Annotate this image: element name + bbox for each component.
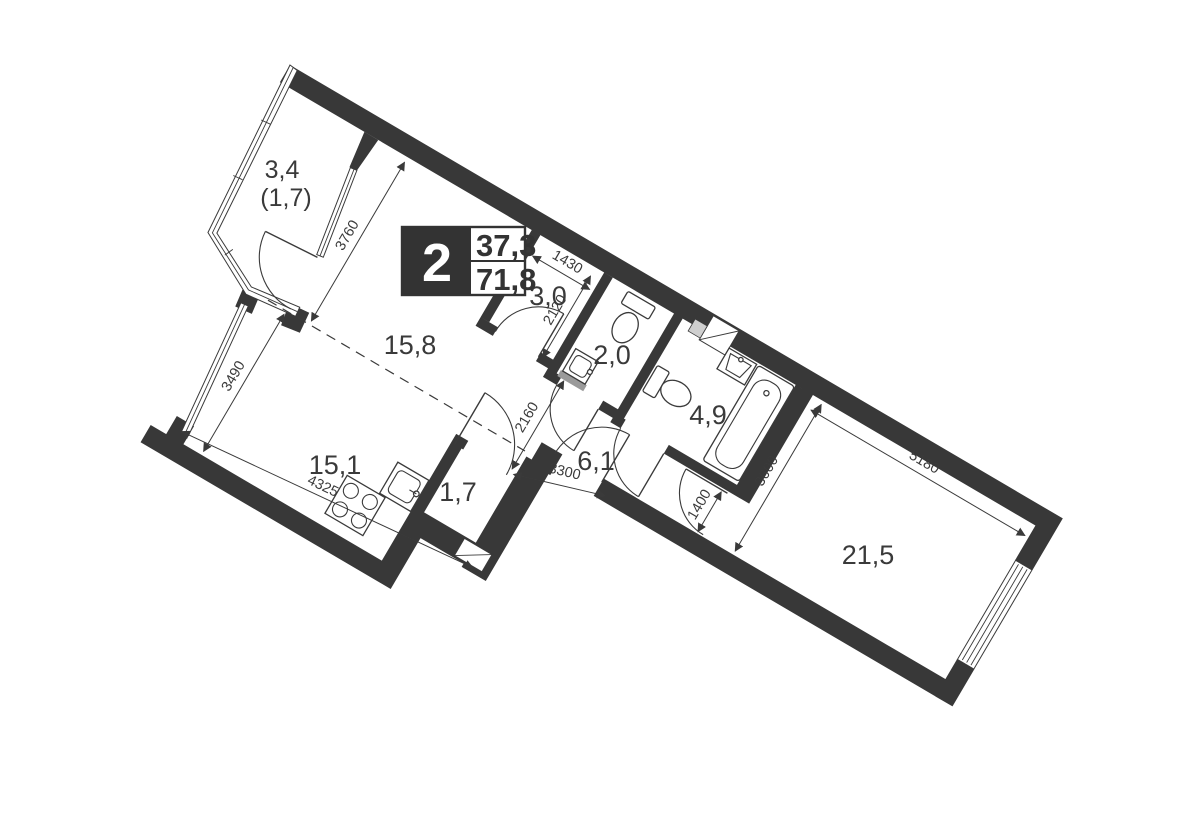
- badge-area-lower: 71,8: [476, 262, 536, 297]
- room-label-balcony: 3,4: [265, 156, 300, 184]
- room-label-bathroom: 4,9: [689, 400, 727, 430]
- room-label-wc: 2,0: [593, 340, 631, 370]
- apartment-badge: 2 37,3 71,8: [402, 227, 536, 297]
- room-label-storage: 1,7: [439, 477, 477, 507]
- badge-area-upper: 37,3: [476, 228, 536, 263]
- dim-value: 2160: [512, 400, 542, 436]
- plan-rotated-group: 3760 1430 2120 2160 3300 3490 4325 3600: [87, 65, 1063, 820]
- dim-value: 1400: [685, 487, 715, 523]
- floor-plan-canvas: 3760 1430 2120 2160 3300 3490 4325 3600: [0, 0, 1200, 820]
- dimension-passage-width: 1400: [681, 482, 722, 532]
- room-label-balcony-reduced: (1,7): [260, 184, 311, 212]
- dim-value: 3490: [219, 358, 249, 394]
- room-label-bedroom: 21,5: [842, 540, 895, 570]
- room-label-living: 15,8: [384, 330, 437, 360]
- room-label-hallway: 6,1: [577, 446, 615, 476]
- floor-plan-page: 3760 1430 2120 2160 3300 3490 4325 3600: [0, 0, 1200, 820]
- room-label-kitchen: 15,1: [309, 450, 362, 480]
- dimension-bedroom-length: 5180: [811, 393, 1035, 536]
- badge-rooms-count: 2: [422, 233, 452, 293]
- walls: [87, 65, 1063, 820]
